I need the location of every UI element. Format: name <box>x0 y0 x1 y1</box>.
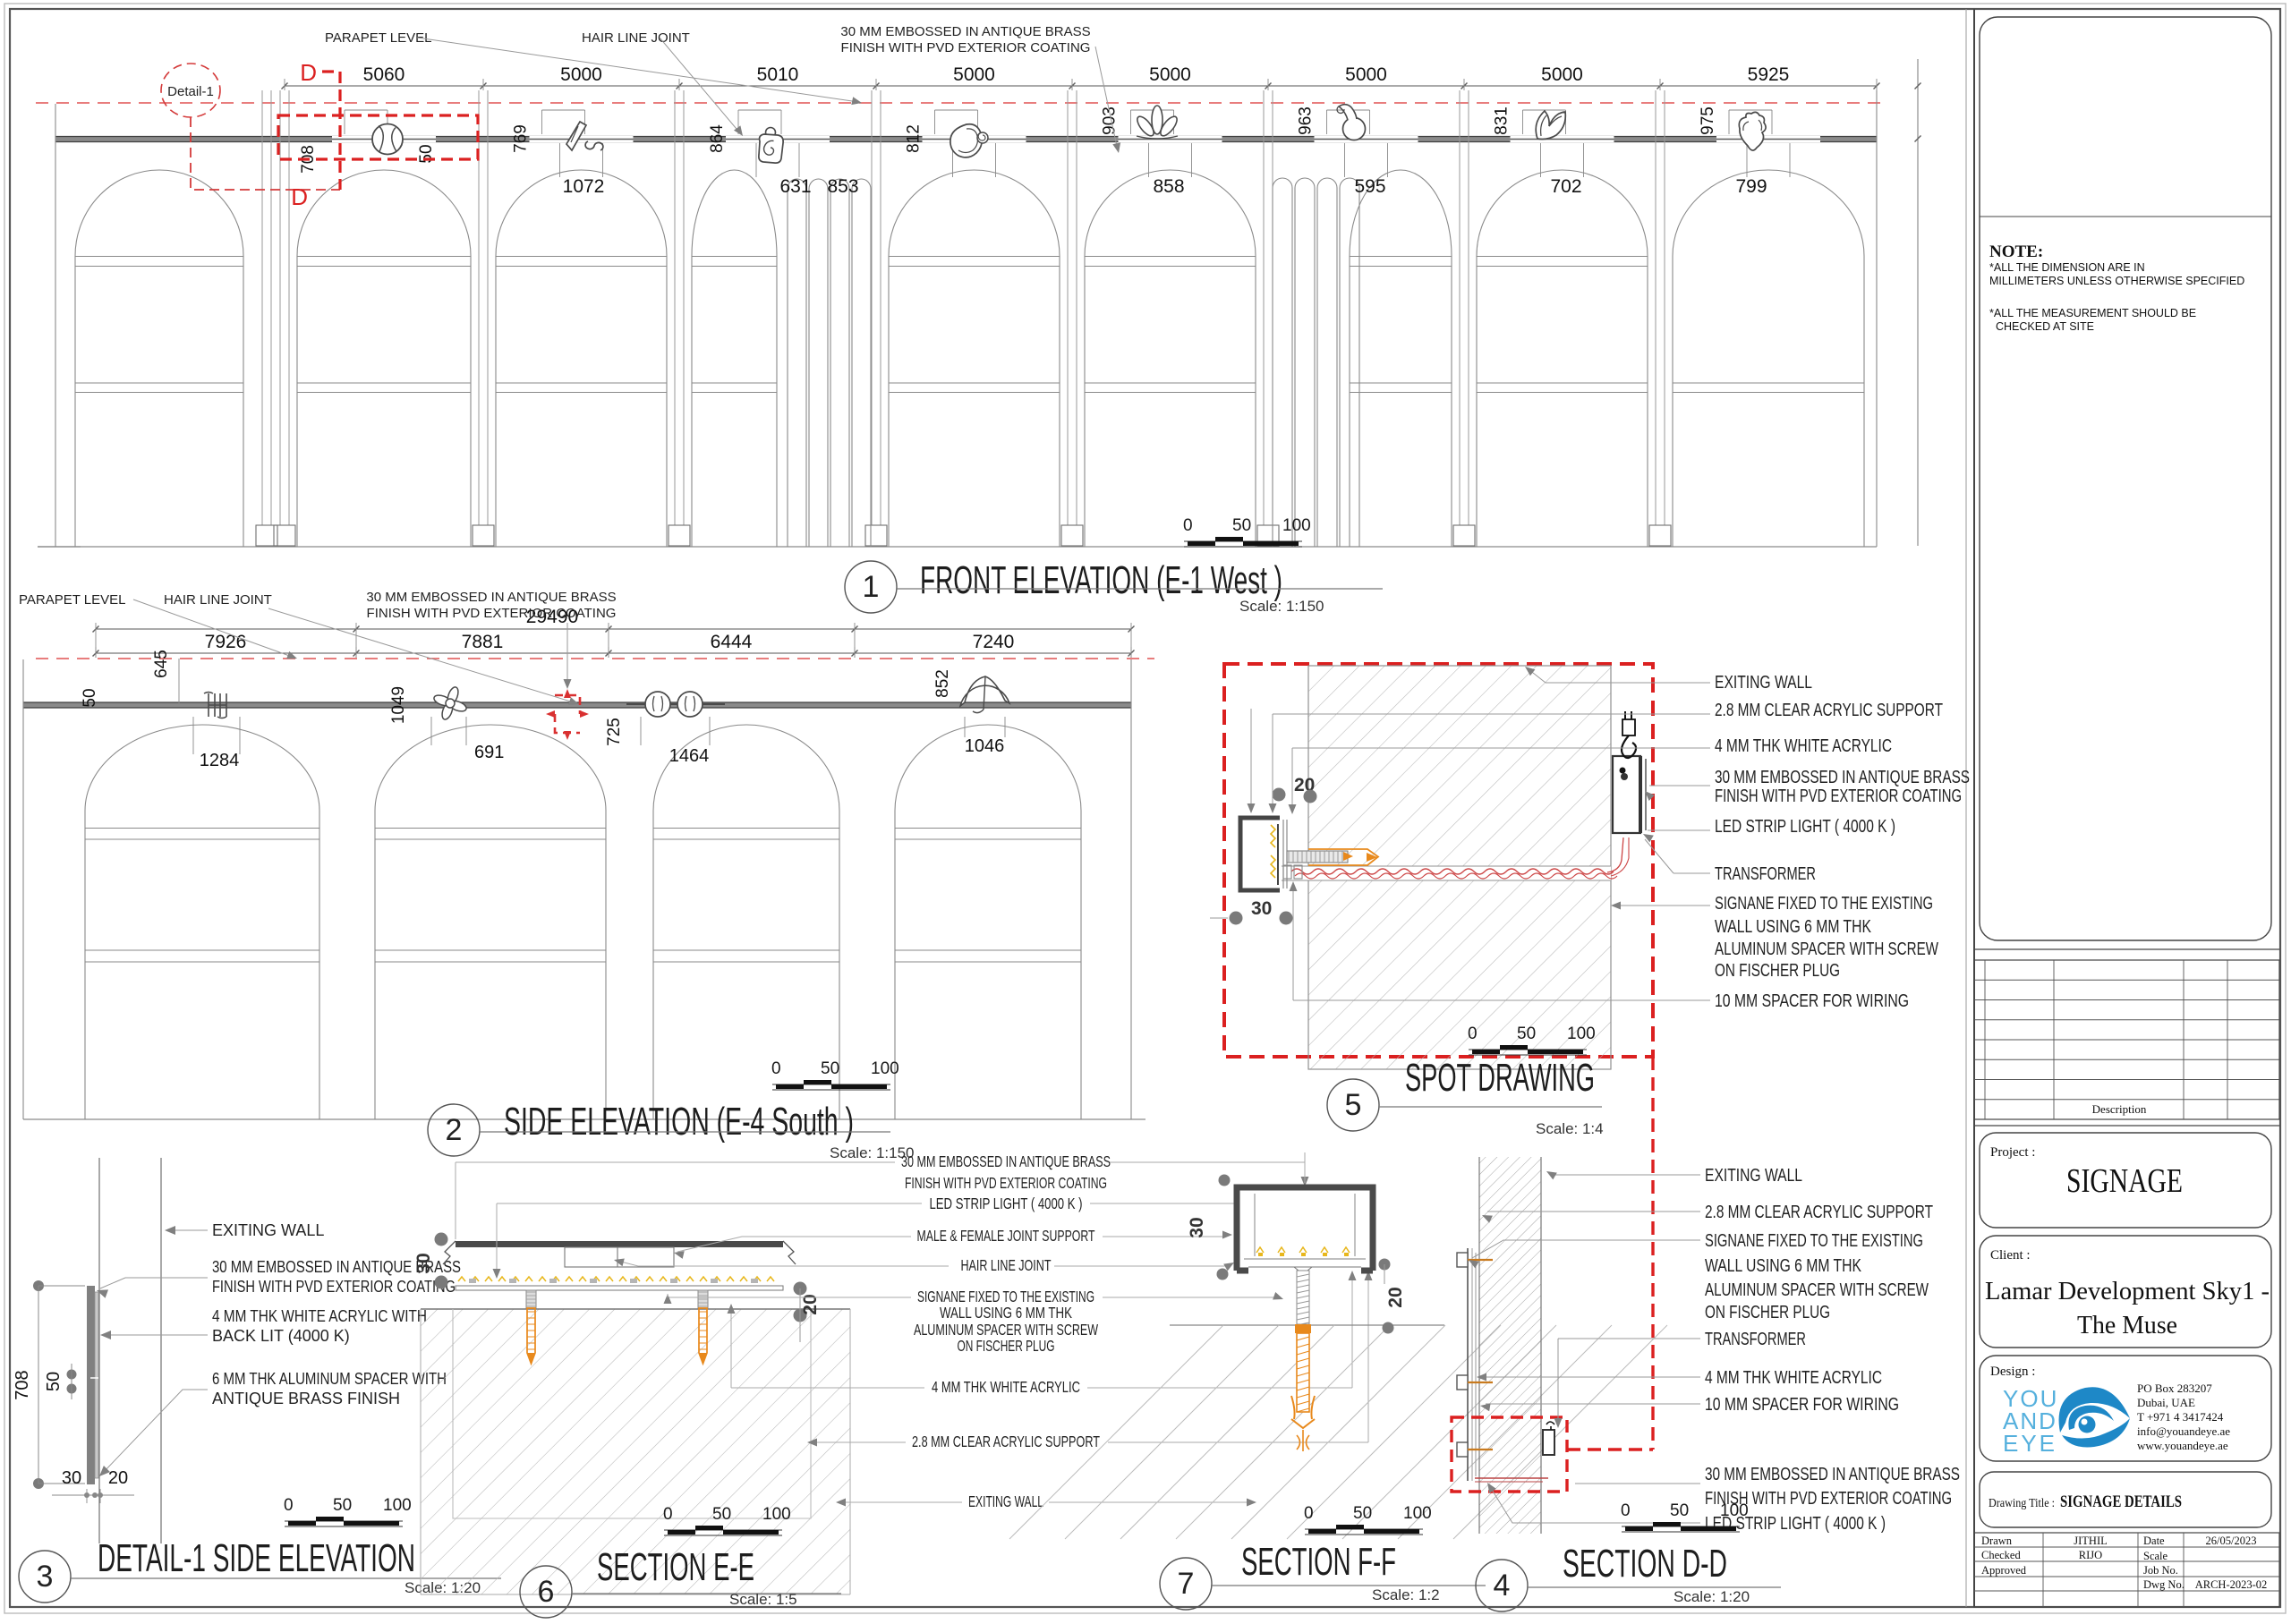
svg-text:7881: 7881 <box>462 632 504 652</box>
svg-text:7926: 7926 <box>205 632 247 652</box>
svg-text:Scale: 1:4: Scale: 1:4 <box>1536 1120 1604 1137</box>
svg-text:EXITING WALL: EXITING WALL <box>212 1221 324 1239</box>
svg-text:0: 0 <box>771 1059 781 1078</box>
svg-text:HAIR LINE JOINT: HAIR LINE JOINT <box>961 1256 1052 1274</box>
svg-text:FRONT ELEVATION (E-1 West ): FRONT ELEVATION (E-1 West ) <box>920 558 1282 602</box>
svg-text:The Muse: The Muse <box>2077 1311 2177 1339</box>
svg-text:ANTIQUE BRASS FINISH: ANTIQUE BRASS FINISH <box>212 1390 400 1407</box>
svg-text:853: 853 <box>827 176 858 197</box>
svg-text:702: 702 <box>1550 176 1581 197</box>
svg-text:RIJO: RIJO <box>2079 1549 2102 1561</box>
svg-text:1464: 1464 <box>669 746 710 766</box>
svg-text:858: 858 <box>1153 176 1184 197</box>
svg-text:975: 975 <box>1699 106 1717 135</box>
svg-text:EYE: EYE <box>2003 1430 2057 1457</box>
svg-text:4 MM THK WHITE ACRYLIC: 4 MM THK WHITE ACRYLIC <box>1705 1368 1882 1388</box>
svg-text:SIDE ELEVATION (E-4 South ): SIDE ELEVATION (E-4 South ) <box>504 1100 854 1144</box>
svg-text:631: 631 <box>779 176 811 197</box>
svg-text:FINISH WITH PVD EXTERIOR COATI: FINISH WITH PVD EXTERIOR COATING <box>905 1174 1107 1192</box>
svg-text:TRANSFORMER: TRANSFORMER <box>1705 1330 1806 1349</box>
svg-text:30 MM EMBOSSED IN ANTIQUE BRAS: 30 MM EMBOSSED IN ANTIQUE BRASS <box>1715 768 1970 787</box>
svg-text:50: 50 <box>44 1372 64 1391</box>
svg-text:1072: 1072 <box>563 176 605 197</box>
svg-text:2.8 MM CLEAR ACRYLIC SUPPORT: 2.8 MM CLEAR ACRYLIC SUPPORT <box>912 1433 1100 1450</box>
svg-text:50: 50 <box>1670 1501 1689 1520</box>
svg-text:Approved: Approved <box>1981 1564 2027 1577</box>
svg-text:26/05/2023: 26/05/2023 <box>2206 1535 2257 1547</box>
svg-text:DETAIL-1 SIDE ELEVATION: DETAIL-1 SIDE ELEVATION <box>98 1536 415 1580</box>
svg-text:Design :: Design : <box>1990 1365 2035 1379</box>
svg-text:30: 30 <box>413 1253 434 1273</box>
svg-text:SECTION E-E: SECTION E-E <box>597 1545 754 1589</box>
svg-text:100: 100 <box>1282 516 1311 535</box>
svg-text:ALUMINUM SPACER WITH SCREW: ALUMINUM SPACER WITH SCREW <box>1705 1280 1929 1300</box>
svg-text:Drawn: Drawn <box>1981 1535 2013 1547</box>
svg-text:ON FISCHER PLUG: ON FISCHER PLUG <box>1715 961 1840 981</box>
svg-text:EXITING WALL: EXITING WALL <box>968 1492 1043 1510</box>
svg-text:EXITING WALL: EXITING WALL <box>1715 673 1812 693</box>
svg-text:5000: 5000 <box>1541 64 1583 85</box>
svg-text:7: 7 <box>1178 1567 1195 1601</box>
svg-text:50: 50 <box>821 1059 839 1078</box>
svg-text:30: 30 <box>1187 1217 1207 1237</box>
svg-text:Client :: Client : <box>1990 1248 2031 1263</box>
svg-text:0: 0 <box>1304 1504 1314 1523</box>
svg-text:864: 864 <box>708 124 727 153</box>
svg-text:50: 50 <box>1353 1504 1372 1523</box>
svg-text:ON FISCHER PLUG: ON FISCHER PLUG <box>958 1337 1055 1355</box>
svg-text:www.youandeye.ae: www.youandeye.ae <box>2137 1439 2228 1452</box>
svg-text:SIGNANE FIXED TO THE EXISTING: SIGNANE FIXED TO THE EXISTING <box>1705 1231 1923 1251</box>
svg-text:WALL USING 6 MM THK: WALL USING 6 MM THK <box>1705 1256 1862 1276</box>
svg-text:Dubai, UAE: Dubai, UAE <box>2137 1396 2195 1409</box>
svg-text:6444: 6444 <box>711 632 753 652</box>
svg-text:HAIR LINE JOINT: HAIR LINE JOINT <box>164 592 272 608</box>
svg-text:FINISH WITH PVD EXTERIOR COATI: FINISH WITH PVD EXTERIOR COATING <box>841 40 1091 55</box>
svg-text:WALL USING 6 MM THK: WALL USING 6 MM THK <box>1715 917 1872 937</box>
svg-text:SPOT DRAWING: SPOT DRAWING <box>1405 1056 1595 1100</box>
svg-text:50: 50 <box>712 1505 731 1524</box>
svg-text:Dwg No.: Dwg No. <box>2143 1578 2185 1591</box>
svg-text:1: 1 <box>863 570 880 604</box>
svg-text:645: 645 <box>152 650 171 678</box>
svg-text:EXITING WALL: EXITING WALL <box>1705 1166 1802 1186</box>
svg-text:SECTION F-F: SECTION F-F <box>1241 1540 1396 1584</box>
svg-text:799: 799 <box>1735 176 1767 197</box>
svg-text:0: 0 <box>1183 516 1193 535</box>
svg-text:D: D <box>291 183 308 210</box>
svg-text:708: 708 <box>13 1370 32 1399</box>
svg-text:MILLIMETERS UNLESS OTHERWISE: MILLIMETERS UNLESS OTHERWISE SPECIFIED <box>1989 275 2244 287</box>
svg-text:10 MM SPACER FOR WIRING: 10 MM SPACER FOR WIRING <box>1705 1395 1899 1415</box>
svg-text:4 MM THK WHITE ACRYLIC: 4 MM THK WHITE ACRYLIC <box>932 1378 1080 1396</box>
svg-text:Description: Description <box>2092 1102 2147 1116</box>
svg-text:831: 831 <box>1493 106 1512 135</box>
svg-text:SECTION D-D: SECTION D-D <box>1563 1542 1727 1586</box>
svg-text:0: 0 <box>1621 1501 1631 1520</box>
svg-text:963: 963 <box>1297 106 1316 135</box>
svg-text:5060: 5060 <box>363 64 405 85</box>
svg-text:MALE & FEMALE JOINT SUPPORT: MALE & FEMALE JOINT SUPPORT <box>917 1227 1095 1245</box>
svg-text:5: 5 <box>1345 1088 1362 1122</box>
svg-text:30 MM EMBOSSED IN ANTIQUE BRAS: 30 MM EMBOSSED IN ANTIQUE BRASS <box>840 24 1090 39</box>
svg-text:D: D <box>300 59 317 86</box>
svg-text:info@youandeye.ae: info@youandeye.ae <box>2137 1424 2230 1438</box>
svg-text:LED STRIP LIGHT ( 4000 K ): LED STRIP LIGHT ( 4000 K ) <box>1715 817 1895 837</box>
svg-text:Detail-1: Detail-1 <box>167 84 214 99</box>
svg-text:0: 0 <box>1468 1025 1478 1043</box>
svg-text:Date: Date <box>2143 1535 2165 1547</box>
svg-text:812: 812 <box>905 124 924 153</box>
svg-text:30 MM EMBOSSED IN ANTIQUE BRAS: 30 MM EMBOSSED IN ANTIQUE BRASS <box>1705 1465 1960 1484</box>
svg-text:595: 595 <box>1354 176 1385 197</box>
svg-text:FINISH WITH PVD EXTERIOR COATI: FINISH WITH PVD EXTERIOR COATING <box>1715 786 1962 806</box>
svg-text:*ALL THE DIMENSION ARE IN: *ALL THE DIMENSION ARE IN <box>1989 261 2145 274</box>
svg-text:30 MM EMBOSSED IN ANTIQUE BRAS: 30 MM EMBOSSED IN ANTIQUE BRASS <box>901 1152 1111 1170</box>
svg-text:10 MM SPACER FOR WIRING: 10 MM SPACER FOR WIRING <box>1715 991 1909 1011</box>
svg-text:Scale: 1:150: Scale: 1:150 <box>1239 598 1324 615</box>
svg-text:Scale: Scale <box>2143 1550 2168 1562</box>
svg-text:5000: 5000 <box>560 64 602 85</box>
svg-text:5010: 5010 <box>757 64 799 85</box>
svg-text:0: 0 <box>663 1505 673 1524</box>
svg-text:20: 20 <box>108 1468 128 1488</box>
svg-text:5000: 5000 <box>953 64 995 85</box>
svg-text:5000: 5000 <box>1345 64 1387 85</box>
svg-text:6 MM THK ALUMINUM SPACER WITH: 6 MM THK ALUMINUM SPACER WITH <box>212 1370 447 1388</box>
svg-text:Project :: Project : <box>1990 1145 2035 1160</box>
svg-text:769: 769 <box>512 124 531 153</box>
svg-text:Drawing Title :: Drawing Title : <box>1989 1497 2055 1510</box>
svg-text:SIGNANE FIXED TO THE EXISTING: SIGNANE FIXED TO THE EXISTING <box>1715 894 1933 914</box>
svg-text:852: 852 <box>933 669 952 698</box>
svg-text:30 MM EMBOSSED IN ANTIQUE BRAS: 30 MM EMBOSSED IN ANTIQUE BRASS <box>366 590 616 605</box>
svg-text:WALL USING 6 MM THK: WALL USING 6 MM THK <box>940 1304 1072 1322</box>
svg-text:2.8 MM CLEAR ACRYLIC SUPPORT: 2.8 MM CLEAR ACRYLIC SUPPORT <box>1705 1203 1933 1222</box>
svg-text:2.8 MM CLEAR ACRYLIC SUPPORT: 2.8 MM CLEAR ACRYLIC SUPPORT <box>1715 701 1943 720</box>
svg-text:30: 30 <box>1251 898 1272 919</box>
svg-text:1046: 1046 <box>965 736 1005 756</box>
svg-text:4 MM THK WHITE ACRYLIC: 4 MM THK WHITE ACRYLIC <box>1715 736 1892 756</box>
svg-text:100: 100 <box>383 1496 412 1515</box>
svg-text:Lamar Development Sky1 -: Lamar Development Sky1 - <box>1985 1277 2270 1305</box>
svg-text:50: 50 <box>1517 1025 1536 1043</box>
svg-text:ALUMINUM SPACER WITH SCREW: ALUMINUM SPACER WITH SCREW <box>1715 940 1938 959</box>
svg-text:Job No.: Job No. <box>2143 1564 2178 1577</box>
svg-text:5000: 5000 <box>1149 64 1191 85</box>
svg-text:SIGNAGE: SIGNAGE <box>2066 1162 2183 1200</box>
svg-text:Scale: 1:20: Scale: 1:20 <box>1674 1588 1750 1605</box>
svg-text:NOTE:: NOTE: <box>1989 242 2043 261</box>
svg-text:ON FISCHER PLUG: ON FISCHER PLUG <box>1705 1303 1830 1322</box>
svg-text:HAIR LINE JOINT: HAIR LINE JOINT <box>582 30 690 46</box>
svg-text:FINISH WITH PVD EXTERIOR COATI: FINISH WITH PVD EXTERIOR COATING <box>212 1278 456 1296</box>
svg-text:50: 50 <box>81 688 99 707</box>
svg-text:JITHIL: JITHIL <box>2074 1535 2108 1547</box>
svg-text:5925: 5925 <box>1748 64 1790 85</box>
svg-text:100: 100 <box>871 1059 899 1078</box>
svg-text:7240: 7240 <box>973 632 1015 652</box>
svg-text:1049: 1049 <box>389 686 408 724</box>
svg-text:ALUMINUM SPACER WITH SCREW: ALUMINUM SPACER WITH SCREW <box>914 1321 1098 1339</box>
svg-text:50: 50 <box>1232 516 1251 535</box>
svg-text:2: 2 <box>446 1113 463 1147</box>
svg-text:Scale: 1:2: Scale: 1:2 <box>1372 1586 1440 1603</box>
svg-text:PO Box 283207: PO Box 283207 <box>2137 1382 2212 1395</box>
svg-text:PARAPET LEVEL: PARAPET LEVEL <box>325 30 432 46</box>
svg-text:50: 50 <box>333 1496 352 1515</box>
svg-text:100: 100 <box>1720 1501 1749 1520</box>
svg-text:100: 100 <box>762 1505 791 1524</box>
svg-text:BACK LIT (4000 K): BACK LIT (4000 K) <box>212 1327 350 1345</box>
svg-text:SIGNANE FIXED TO THE EXISTING: SIGNANE FIXED TO THE EXISTING <box>917 1288 1094 1305</box>
svg-text:*ALL THE MEASUREMENT SHOULD: *ALL THE MEASUREMENT SHOULD BE <box>1989 307 2196 319</box>
svg-text:1284: 1284 <box>200 751 240 770</box>
svg-text:SIGNAGE DETAILS: SIGNAGE DETAILS <box>2060 1492 2182 1511</box>
svg-text:30: 30 <box>62 1468 81 1488</box>
svg-text:6: 6 <box>538 1575 555 1609</box>
svg-text:100: 100 <box>1403 1504 1432 1523</box>
svg-text:20: 20 <box>1385 1287 1406 1307</box>
svg-text:LED STRIP LIGHT ( 4000 K ): LED STRIP LIGHT ( 4000 K ) <box>930 1195 1083 1212</box>
svg-text:CHECKED AT SITE: CHECKED AT SITE <box>1996 320 2094 333</box>
svg-text:TRANSFORMER: TRANSFORMER <box>1715 864 1816 884</box>
svg-text:3: 3 <box>37 1560 54 1594</box>
svg-text:100: 100 <box>1567 1025 1596 1043</box>
svg-text:0: 0 <box>284 1496 294 1515</box>
svg-text:FINISH WITH PVD EXTERIOR COATI: FINISH WITH PVD EXTERIOR COATING <box>367 606 617 621</box>
svg-text:725: 725 <box>605 718 624 746</box>
svg-text:Scale: 1:5: Scale: 1:5 <box>729 1591 797 1608</box>
svg-text:ARCH-2023-02: ARCH-2023-02 <box>2195 1578 2268 1591</box>
svg-text:Checked: Checked <box>1981 1549 2021 1561</box>
svg-text:T +971 4 3417424: T +971 4 3417424 <box>2137 1410 2224 1424</box>
svg-text:4 MM THK WHITE ACRYLIC WITH: 4 MM THK WHITE ACRYLIC WITH <box>212 1307 427 1325</box>
svg-text:4: 4 <box>1494 1569 1511 1603</box>
svg-text:PARAPET LEVEL: PARAPET LEVEL <box>19 592 126 608</box>
svg-text:691: 691 <box>474 743 504 762</box>
